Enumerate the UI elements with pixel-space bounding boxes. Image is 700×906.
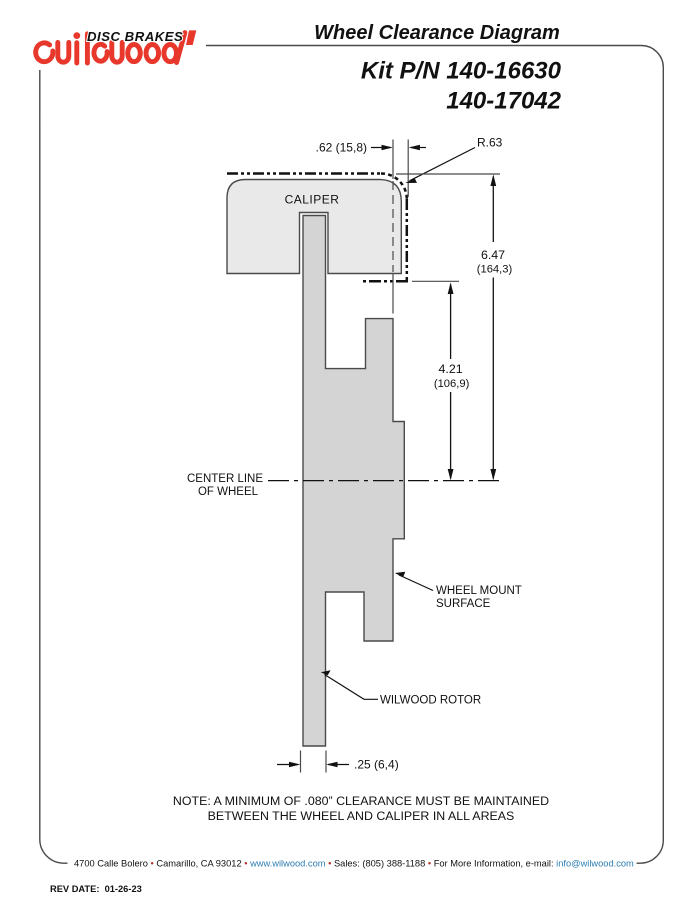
svg-text:BETWEEN THE WHEEL AND CALIPER: BETWEEN THE WHEEL AND CALIPER IN ALL ARE… — [208, 809, 515, 823]
svg-text:WILWOOD ROTOR: WILWOOD ROTOR — [380, 694, 481, 706]
svg-text:.62 (15,8): .62 (15,8) — [316, 141, 367, 155]
svg-text:NOTE: A MINIMUM OF .080” CLEAR: NOTE: A MINIMUM OF .080” CLEARANCE MUST … — [173, 794, 549, 808]
svg-text:CALIPER: CALIPER — [285, 192, 340, 206]
svg-text:CENTER LINE: CENTER LINE — [187, 473, 263, 485]
svg-text:DISC BRAKES: DISC BRAKES — [87, 29, 183, 44]
svg-text:Kit P/N 140-16630: Kit P/N 140-16630 — [361, 58, 562, 85]
svg-text:R.63: R.63 — [477, 136, 503, 150]
svg-text:(164,3): (164,3) — [477, 264, 513, 276]
svg-text:Wheel Clearance Diagram: Wheel Clearance Diagram — [314, 22, 560, 44]
svg-text:SURFACE: SURFACE — [436, 598, 491, 610]
svg-text:140-17042: 140-17042 — [446, 88, 561, 115]
svg-text:REV DATE: 01-26-23: REV DATE: 01-26-23 — [50, 884, 142, 894]
svg-text:6.47: 6.47 — [481, 248, 505, 262]
svg-text:(106,9): (106,9) — [434, 378, 470, 390]
svg-text:4.21: 4.21 — [439, 362, 463, 376]
svg-text:4700 Calle Bolero • Camarillo,: 4700 Calle Bolero • Camarillo, CA 93012 … — [74, 859, 634, 869]
svg-text:WHEEL MOUNT: WHEEL MOUNT — [436, 585, 522, 597]
svg-text:OF WHEEL: OF WHEEL — [198, 486, 259, 498]
svg-text:.25 (6,4): .25 (6,4) — [354, 758, 399, 772]
